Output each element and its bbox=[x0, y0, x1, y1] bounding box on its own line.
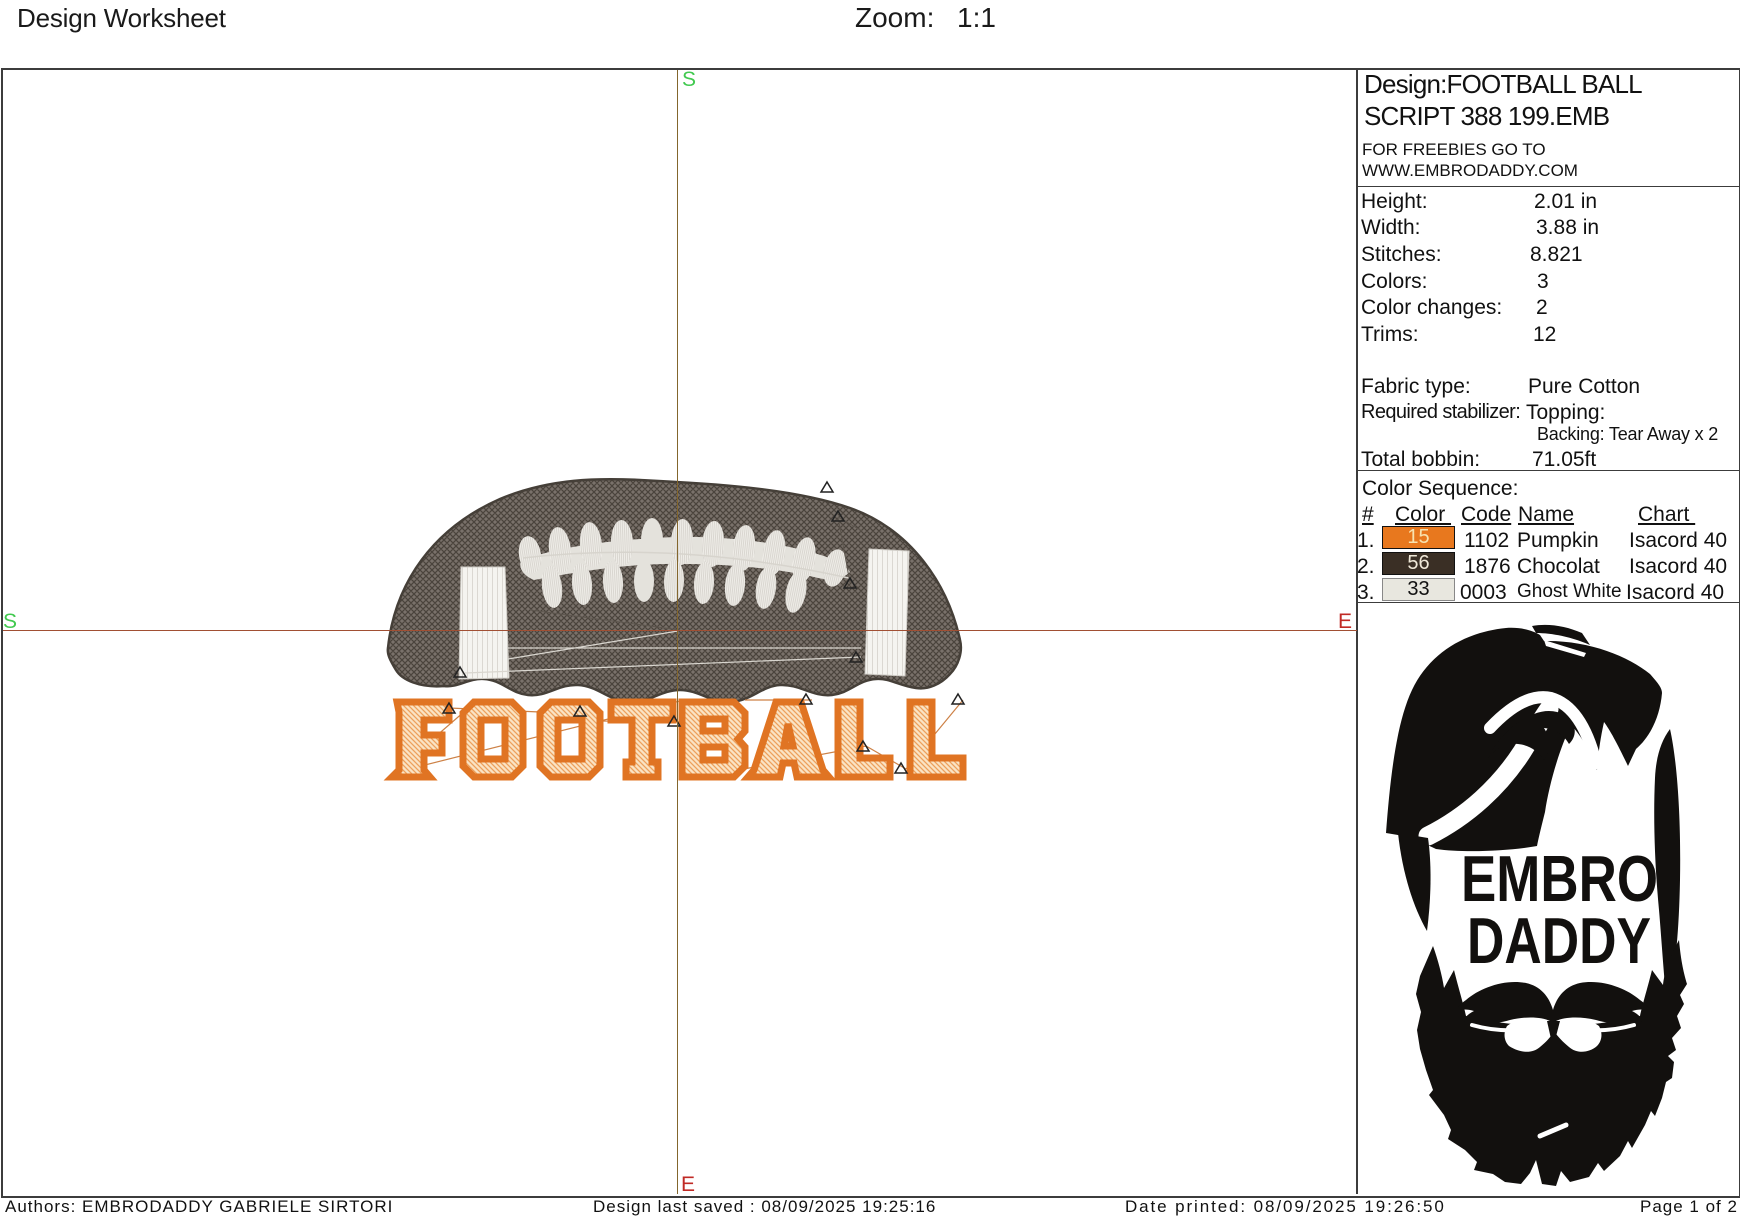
svg-text:DADDY: DADDY bbox=[1467, 904, 1651, 977]
